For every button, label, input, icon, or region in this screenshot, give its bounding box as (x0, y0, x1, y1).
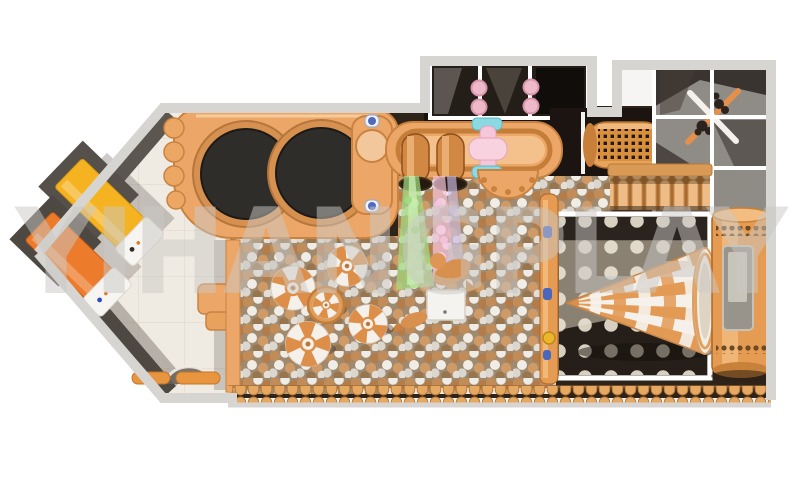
wall-curb-2 (176, 372, 220, 384)
gold-knob (543, 332, 555, 344)
edge-scallop (164, 166, 184, 186)
climb-hold (543, 226, 552, 238)
ball-pit-left-wall (226, 240, 240, 392)
ball-blower-box (427, 290, 465, 320)
edge-scallop (164, 142, 184, 162)
climbing-pillar (540, 194, 558, 384)
entry-step-1 (198, 284, 230, 314)
slide-tower (711, 208, 771, 382)
edge-scallop (167, 191, 185, 209)
scene-svg (0, 0, 800, 480)
climb-hold (543, 350, 551, 360)
edge-scallop (164, 118, 184, 138)
barrel-roller (356, 130, 388, 162)
climb-hold (543, 288, 552, 300)
roller-curtain (608, 164, 712, 212)
playground-render: YIHANGPLAY (0, 0, 800, 480)
